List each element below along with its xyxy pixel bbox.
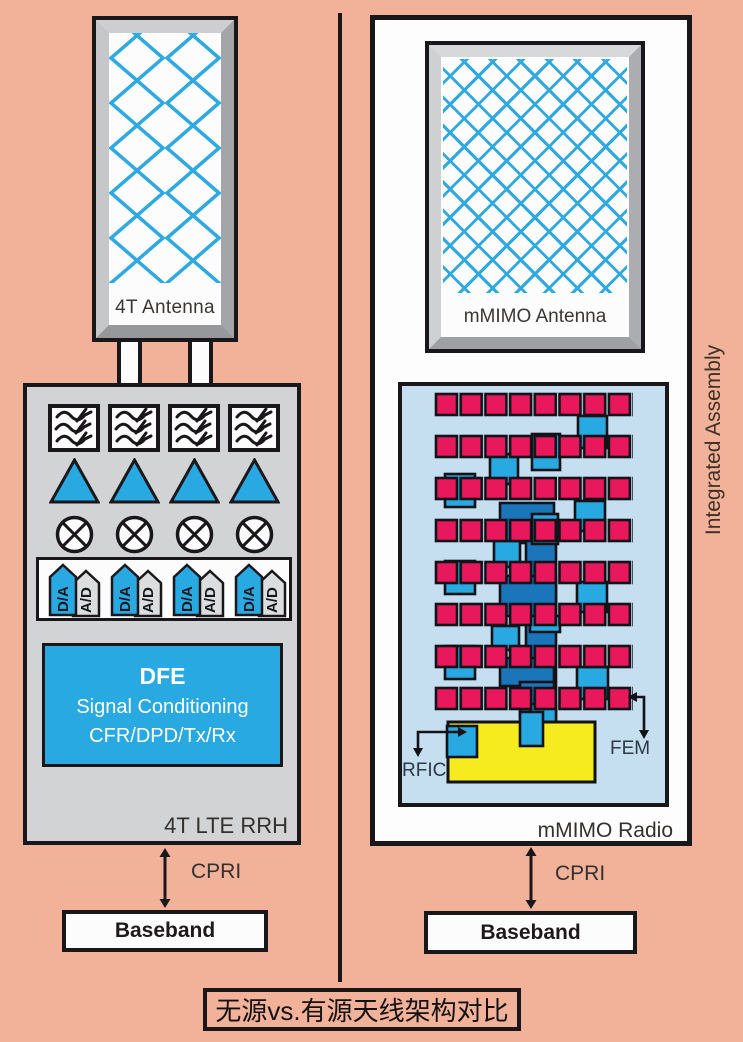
rrh-label: 4T LTE RRH xyxy=(164,813,288,839)
4t-antenna-box: 4T Antenna xyxy=(92,16,238,342)
filter-icon xyxy=(108,404,160,452)
filter-icon xyxy=(48,404,100,452)
converter-pair: A/D D/A xyxy=(110,563,162,618)
antenna-element-lattice-icon xyxy=(443,59,627,293)
cpri-label: CPRI xyxy=(191,860,241,884)
da-label: D/A xyxy=(117,586,134,612)
mmimo-radio-box: RFIC FEM xyxy=(398,382,669,807)
converter-pair: A/D D/A xyxy=(172,563,224,618)
mixer-icon xyxy=(54,514,95,555)
antenna-bevel-frame: mMIMO Antenna xyxy=(429,45,641,349)
da-converter-icon: D/A xyxy=(48,563,78,617)
cpri-arrow xyxy=(157,847,173,909)
baseband-label: Baseband xyxy=(480,921,580,945)
baseband-box: Baseband xyxy=(62,910,268,952)
amplifier-icon xyxy=(229,458,280,504)
filter-icon xyxy=(228,404,280,452)
fem-label: FEM xyxy=(610,738,650,760)
radio-label: mMIMO Radio xyxy=(538,819,673,843)
mixer-row xyxy=(54,514,275,555)
integrated-assembly-box: mMIMO Antenna xyxy=(370,15,692,846)
amplifier-icon xyxy=(49,458,100,504)
da-converter-icon: D/A xyxy=(234,563,264,617)
converter-bar: A/D D/A A/D D/A A/D D/A A/D D/A xyxy=(36,557,292,621)
ad-label: A/D xyxy=(78,587,95,613)
center-divider-line xyxy=(338,13,342,982)
figure-title-box: 无源vs.有源天线架构对比 xyxy=(203,988,521,1031)
dfe-box: DFE Signal Conditioning CFR/DPD/Tx/Rx xyxy=(42,643,283,767)
da-converter-icon: D/A xyxy=(172,563,202,617)
da-label: D/A xyxy=(179,586,196,612)
rfic-label: RFIC xyxy=(402,760,446,782)
filter-icon xyxy=(168,404,220,452)
pink-element-grid xyxy=(434,392,633,711)
baseband-box: Baseband xyxy=(424,911,637,954)
cpri-arrow xyxy=(523,846,539,910)
amplifier-row xyxy=(49,458,280,504)
antenna-feed-cable xyxy=(188,338,213,388)
figure-antenna-architecture-comparison: 4T Antenna A/D D/A A xyxy=(0,0,743,1042)
ad-label: A/D xyxy=(140,587,157,613)
integrated-assembly-label: Integrated Assembly xyxy=(702,345,726,535)
antenna-label: 4T Antenna xyxy=(109,297,221,319)
dipole-lattice-icon xyxy=(109,33,221,283)
ad-label: A/D xyxy=(202,587,219,613)
antenna-feed-cable xyxy=(117,338,142,388)
amplifier-icon xyxy=(169,458,220,504)
baseband-label: Baseband xyxy=(115,919,215,943)
ad-label: A/D xyxy=(264,587,281,613)
amplifier-icon xyxy=(109,458,160,504)
antenna-bevel-frame: 4T Antenna xyxy=(96,20,234,338)
converter-pair: A/D D/A xyxy=(234,563,286,618)
converter-pair: A/D D/A xyxy=(48,563,100,618)
da-label: D/A xyxy=(55,586,72,612)
dfe-line: Signal Conditioning xyxy=(76,696,248,719)
filter-row xyxy=(48,404,280,452)
dfe-title: DFE xyxy=(140,663,186,690)
antenna-label: mMIMO Antenna xyxy=(441,306,629,328)
mmimo-antenna-box: mMIMO Antenna xyxy=(425,41,645,353)
cpri-label: CPRI xyxy=(555,862,605,886)
dfe-line: CFR/DPD/Tx/Rx xyxy=(89,725,236,748)
mixer-icon xyxy=(174,514,215,555)
4t-lte-rrh-box: A/D D/A A/D D/A A/D D/A A/D D/A DFE Sign… xyxy=(23,383,301,845)
da-label: D/A xyxy=(241,586,258,612)
mixer-icon xyxy=(234,514,275,555)
mixer-icon xyxy=(114,514,155,555)
da-converter-icon: D/A xyxy=(110,563,140,617)
figure-title: 无源vs.有源天线架构对比 xyxy=(215,991,508,1028)
